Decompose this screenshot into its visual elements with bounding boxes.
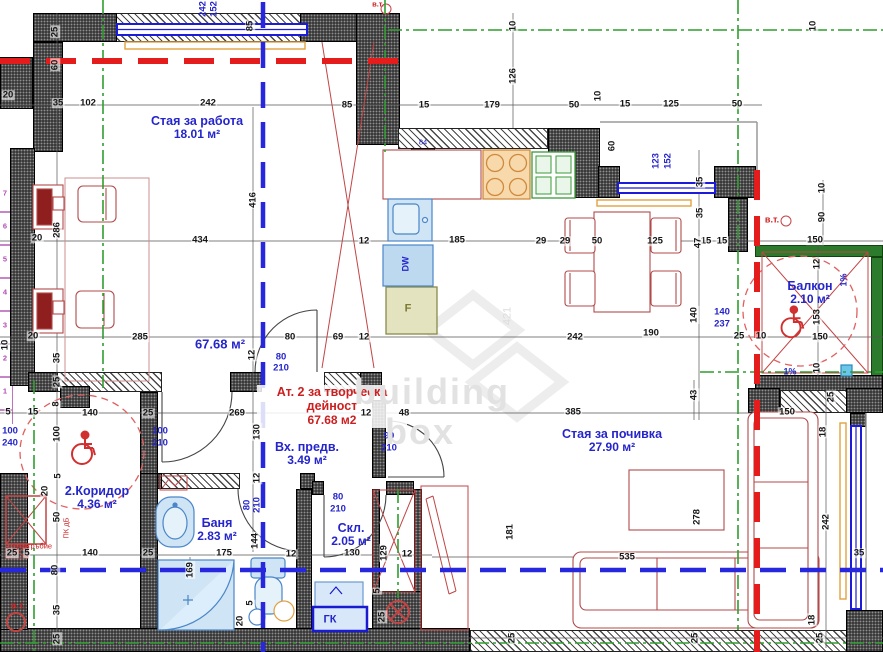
plan-linework	[0, 0, 883, 652]
kitchen-appliances	[383, 150, 575, 334]
accessibility-circles	[20, 256, 857, 509]
wheelchair-icon	[72, 306, 803, 464]
floor-plan: Стая за работа18.01 м²Вх. предв.3.49 м²2…	[0, 0, 883, 652]
doors	[162, 310, 444, 557]
watermark-logo	[428, 295, 562, 417]
